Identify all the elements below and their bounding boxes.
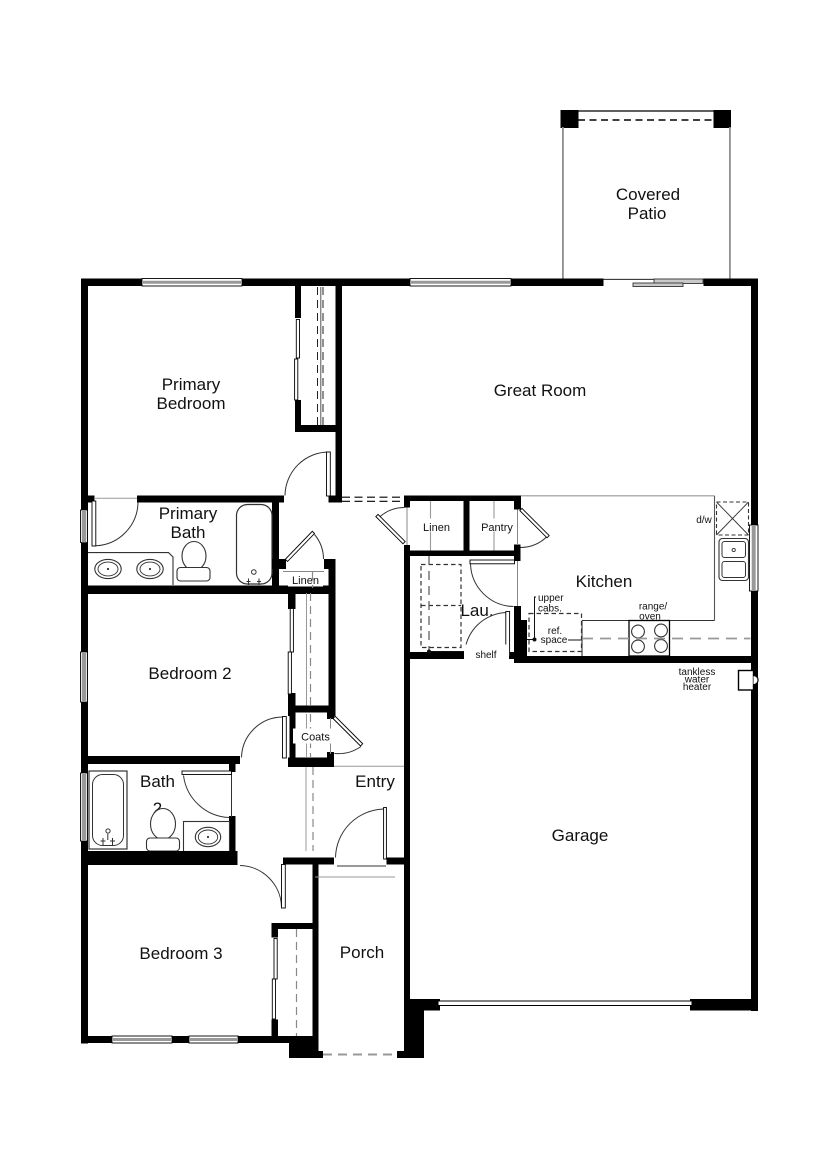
svg-text:Primary: Primary xyxy=(162,375,221,394)
svg-text:Garage: Garage xyxy=(552,826,609,845)
svg-text:Kitchen: Kitchen xyxy=(576,572,633,591)
svg-text:Great Room: Great Room xyxy=(494,381,587,400)
svg-text:oven: oven xyxy=(639,612,661,623)
svg-text:space: space xyxy=(541,635,568,646)
svg-text:Linen: Linen xyxy=(423,522,450,534)
svg-text:heater: heater xyxy=(683,682,712,693)
svg-text:Coats: Coats xyxy=(301,732,330,744)
svg-text:upper: upper xyxy=(538,593,564,604)
svg-text:Bedroom 2: Bedroom 2 xyxy=(148,664,231,683)
svg-text:Primary: Primary xyxy=(159,504,218,523)
svg-text:Porch: Porch xyxy=(340,943,384,962)
svg-text:Pantry: Pantry xyxy=(481,522,513,534)
svg-text:Covered: Covered xyxy=(616,185,680,204)
svg-text:Entry: Entry xyxy=(355,772,395,791)
svg-text:cabs.: cabs. xyxy=(538,604,562,615)
svg-text:Patio: Patio xyxy=(628,204,667,223)
svg-text:shelf: shelf xyxy=(475,650,496,661)
svg-text:Bedroom 3: Bedroom 3 xyxy=(139,944,222,963)
svg-text:Linen: Linen xyxy=(292,575,319,587)
svg-text:Bath: Bath xyxy=(171,523,206,542)
svg-text:Bedroom: Bedroom xyxy=(157,394,226,413)
svg-text:Bath: Bath xyxy=(140,772,175,791)
svg-text:d/w: d/w xyxy=(696,515,712,526)
